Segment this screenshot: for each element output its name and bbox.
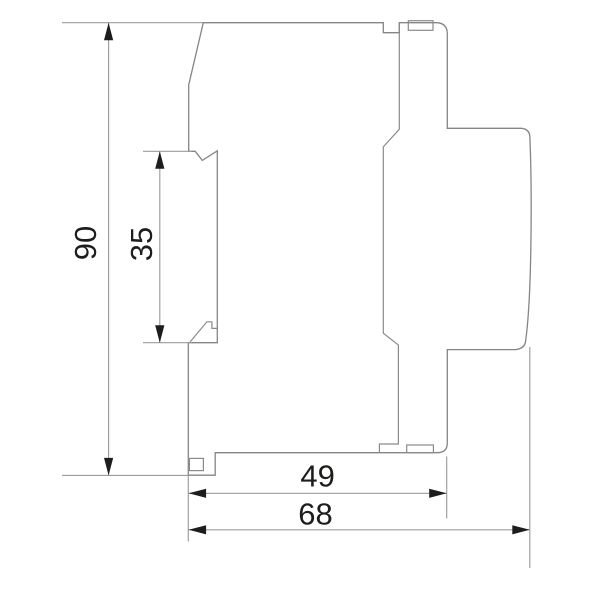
arrowhead-right <box>429 489 447 498</box>
device-outline <box>188 23 531 476</box>
drawing-canvas: 90 35 49 68 <box>0 0 600 600</box>
technical-drawing: 90 35 49 68 <box>0 0 600 600</box>
dimension-label-overall-height: 90 <box>68 226 103 260</box>
dimension-label-overall-depth: 68 <box>298 497 332 532</box>
arrowhead-right <box>512 525 530 534</box>
housing-seam-line <box>379 23 399 453</box>
arrowhead-left <box>189 525 207 534</box>
arrowhead-down <box>104 458 113 476</box>
arrowhead-up <box>104 23 113 41</box>
bottom-clip-tab <box>407 445 434 453</box>
device-profile <box>188 21 531 476</box>
foot-detail <box>189 458 203 470</box>
dimension-overall-depth: 68 <box>189 347 530 568</box>
rail-hook-detail <box>190 322 217 342</box>
dimension-label-rail-recess: 35 <box>124 227 159 261</box>
dimension-label-body-depth: 49 <box>300 459 334 494</box>
arrowhead-up <box>155 151 164 169</box>
arrowhead-down <box>155 325 164 343</box>
arrowhead-left <box>189 489 207 498</box>
dimension-rail-recess: 35 <box>124 151 192 342</box>
